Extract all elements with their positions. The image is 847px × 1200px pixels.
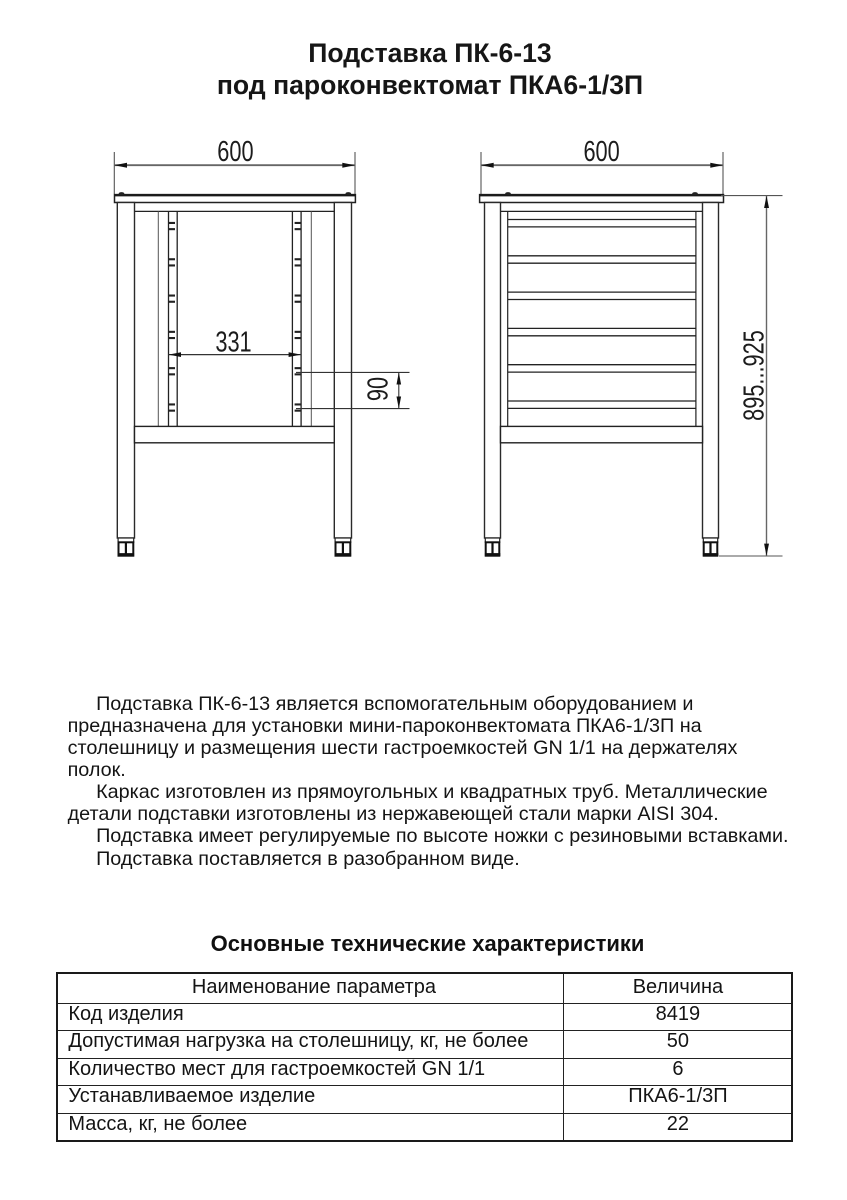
svg-text:895...925: 895...925 [739, 330, 771, 421]
svg-text:600: 600 [217, 136, 253, 168]
svg-text:331: 331 [215, 327, 251, 359]
svg-text:600: 600 [583, 136, 619, 168]
svg-text:90: 90 [363, 377, 395, 401]
